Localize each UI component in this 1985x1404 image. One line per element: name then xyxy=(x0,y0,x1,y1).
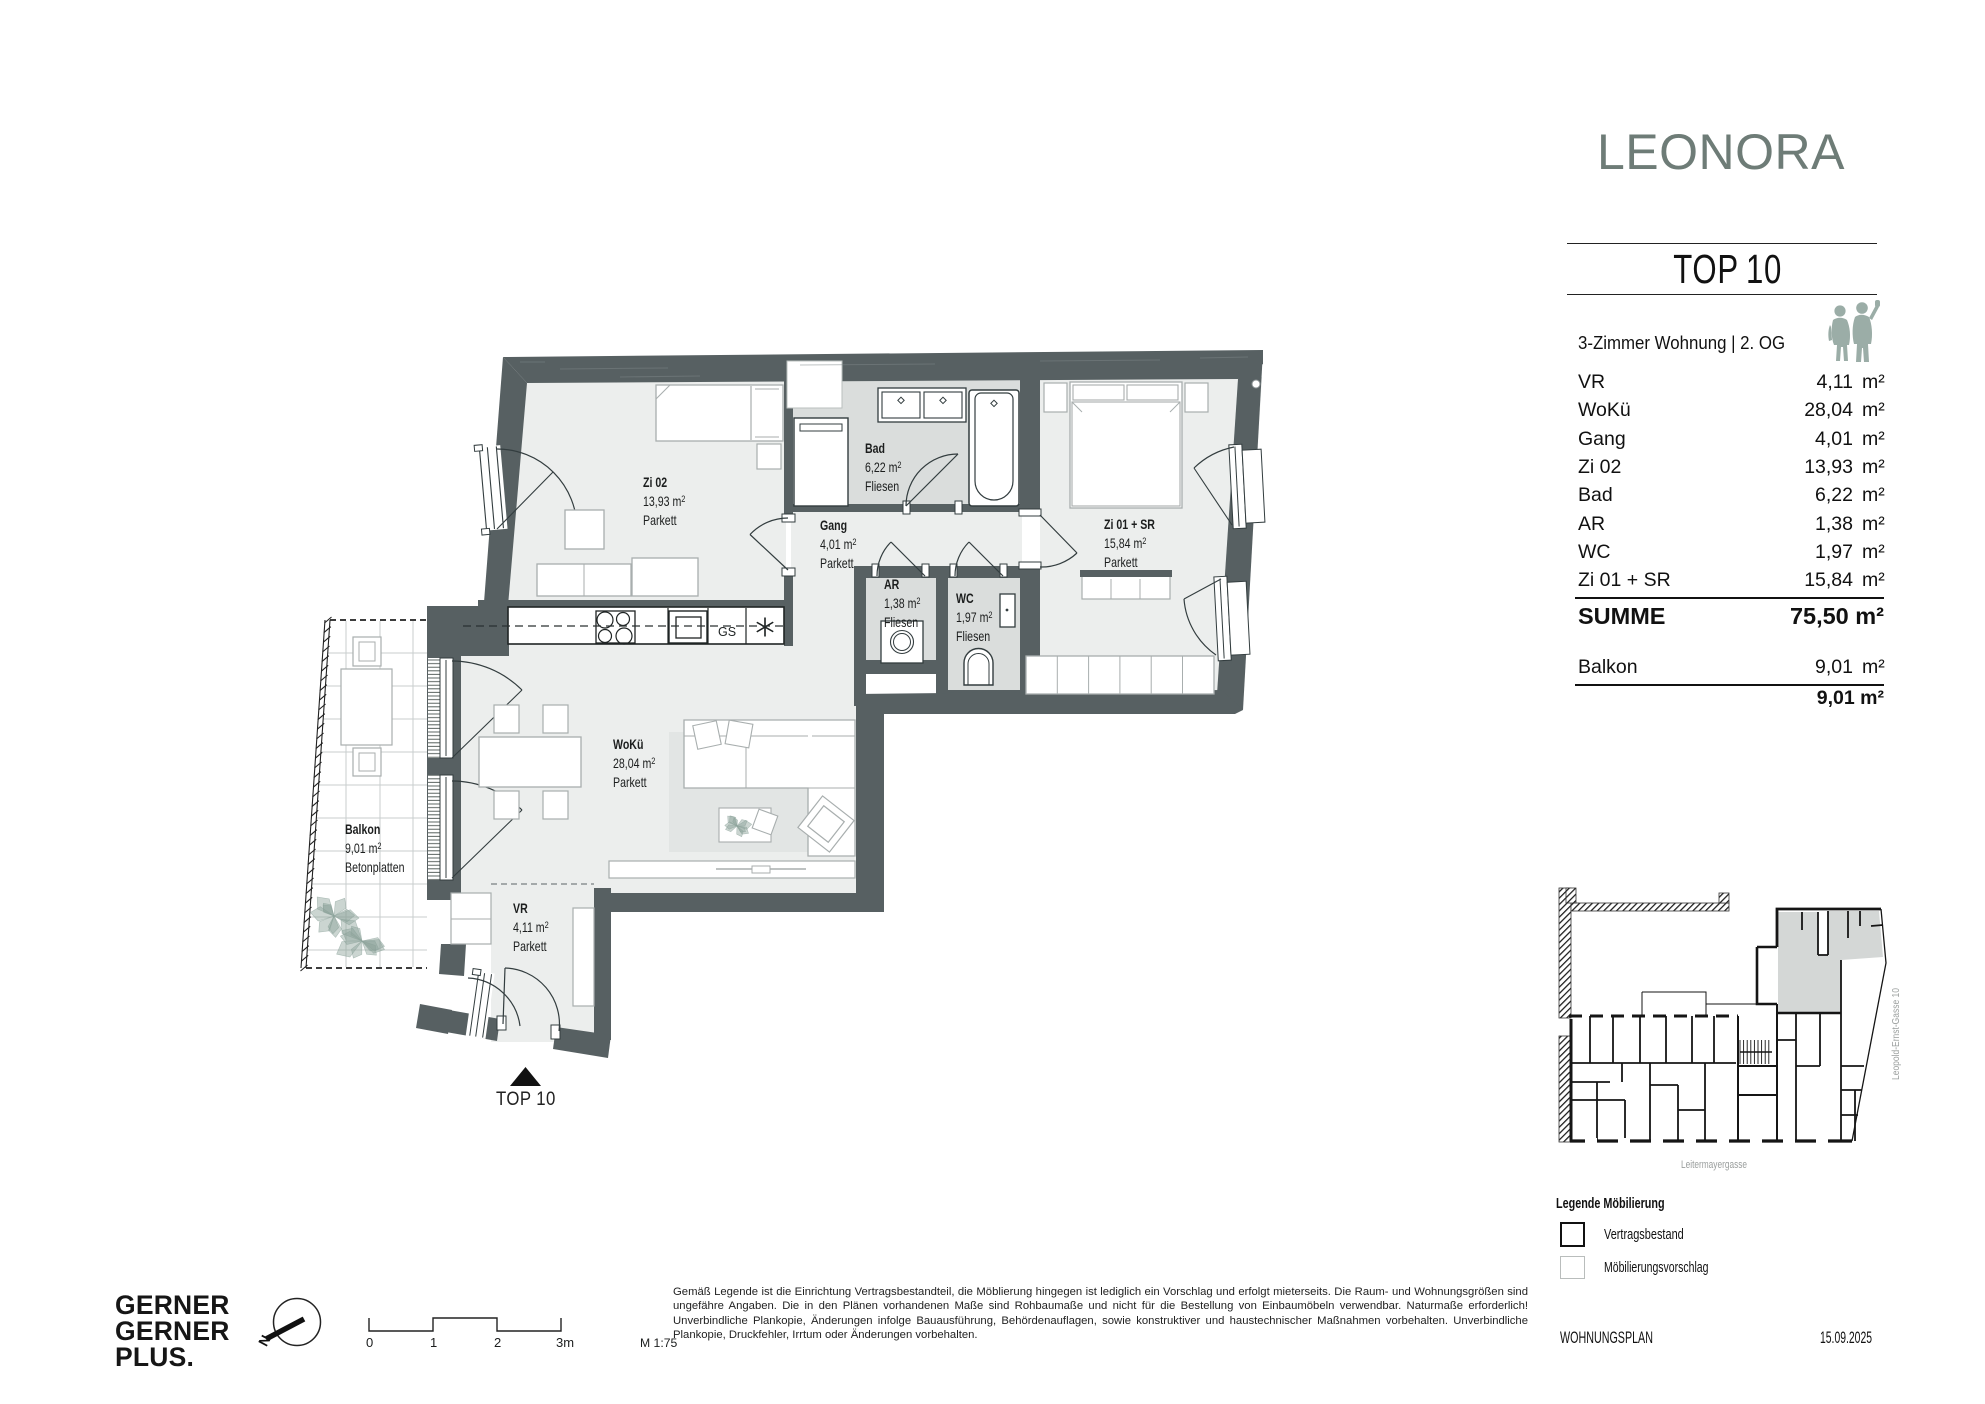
svg-text:0: 0 xyxy=(366,1335,373,1350)
svg-text:3m: 3m xyxy=(556,1335,574,1350)
svg-text:AR: AR xyxy=(884,577,899,593)
svg-text:6,22 m2: 6,22 m2 xyxy=(865,459,902,475)
svg-text:9,01 m2: 9,01 m2 xyxy=(345,840,382,856)
svg-text:GS: GS xyxy=(718,625,736,639)
svg-text:28,04 m2: 28,04 m2 xyxy=(613,755,656,771)
svg-text:Betonplatten: Betonplatten xyxy=(345,860,405,876)
svg-text:VR: VR xyxy=(513,901,528,917)
svg-text:WoKü: WoKü xyxy=(613,737,643,753)
svg-text:1,97 m2: 1,97 m2 xyxy=(956,609,993,625)
svg-text:Leopold-Ernst-Gasse 10: Leopold-Ernst-Gasse 10 xyxy=(1890,988,1902,1080)
svg-text:TOP 10: TOP 10 xyxy=(496,1088,556,1109)
svg-text:4,01 m2: 4,01 m2 xyxy=(820,536,857,552)
svg-text:Parkett: Parkett xyxy=(1104,555,1138,571)
svg-text:2: 2 xyxy=(494,1335,501,1350)
svg-text:Fliesen: Fliesen xyxy=(884,615,918,631)
svg-text:1: 1 xyxy=(430,1335,437,1350)
svg-text:Fliesen: Fliesen xyxy=(865,479,899,495)
svg-text:Bad: Bad xyxy=(865,441,885,457)
svg-text:Parkett: Parkett xyxy=(643,513,677,529)
svg-text:Fliesen: Fliesen xyxy=(956,629,990,645)
svg-text:Gang: Gang xyxy=(820,518,847,534)
svg-text:M 1:75: M 1:75 xyxy=(640,1336,677,1350)
svg-text:Leitermayergasse: Leitermayergasse xyxy=(1681,1159,1747,1171)
svg-text:Zi 02: Zi 02 xyxy=(643,475,667,491)
svg-text:WC: WC xyxy=(956,591,974,607)
svg-text:1,38 m2: 1,38 m2 xyxy=(884,595,921,611)
svg-text:Zi 01 + SR: Zi 01 + SR xyxy=(1104,517,1155,533)
svg-text:Parkett: Parkett xyxy=(513,939,547,955)
svg-text:Balkon: Balkon xyxy=(345,822,380,838)
svg-text:4,11 m2: 4,11 m2 xyxy=(513,919,549,935)
svg-text:15,84 m2: 15,84 m2 xyxy=(1104,535,1147,551)
svg-text:13,93 m2: 13,93 m2 xyxy=(643,493,686,509)
svg-text:Parkett: Parkett xyxy=(613,775,647,791)
svg-text:Parkett: Parkett xyxy=(820,556,854,572)
